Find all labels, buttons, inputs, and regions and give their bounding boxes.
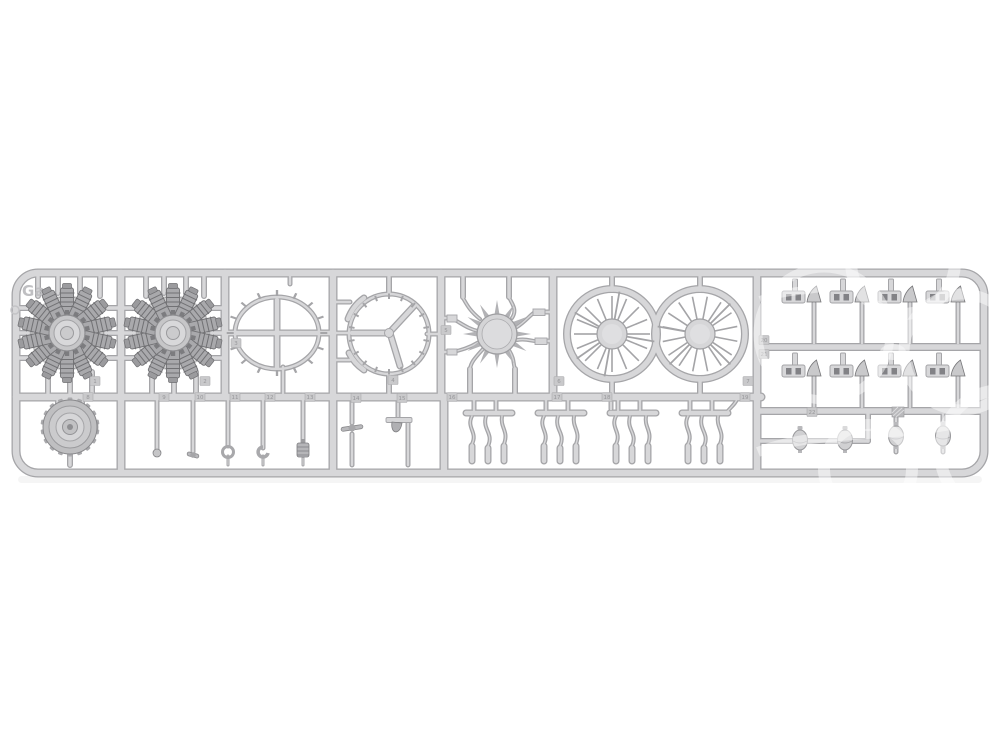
svg-text:16: 16 bbox=[449, 395, 456, 401]
part-number-tag: 6 bbox=[554, 377, 564, 386]
part-number-tag: 13 bbox=[305, 393, 315, 402]
svg-text:5: 5 bbox=[444, 328, 448, 334]
svg-text:17: 17 bbox=[554, 395, 561, 401]
svg-text:12: 12 bbox=[267, 395, 274, 401]
part-number-tag: 1 bbox=[90, 377, 100, 386]
svg-text:18: 18 bbox=[604, 395, 611, 401]
svg-text:6: 6 bbox=[557, 379, 561, 385]
part-number-tag: 17 bbox=[552, 393, 562, 402]
svg-text:4: 4 bbox=[391, 378, 395, 384]
svg-text:7: 7 bbox=[746, 379, 750, 385]
svg-text:14: 14 bbox=[353, 396, 360, 402]
part-number-tag: 14 bbox=[351, 394, 361, 403]
svg-text:8: 8 bbox=[86, 395, 90, 401]
svg-text:13: 13 bbox=[307, 395, 314, 401]
hatched-mould-tag bbox=[892, 407, 904, 417]
part-number-tag: 2 bbox=[200, 377, 210, 386]
part-number-tag: 8 bbox=[83, 393, 93, 402]
part-number-tag: 5 bbox=[441, 326, 451, 335]
part-number-tag: 22 bbox=[807, 408, 817, 417]
tube-end-block bbox=[535, 338, 547, 345]
svg-text:19: 19 bbox=[742, 395, 749, 401]
svg-text:9: 9 bbox=[162, 395, 166, 401]
part-number-tag: 12 bbox=[265, 393, 275, 402]
part-number-tag: 11 bbox=[230, 393, 240, 402]
svg-text:2: 2 bbox=[203, 379, 207, 385]
small-ball-part bbox=[153, 449, 161, 457]
part-number-tag: 18 bbox=[602, 393, 612, 402]
svg-text:11: 11 bbox=[232, 395, 239, 401]
part-number-tag: 10 bbox=[195, 393, 205, 402]
svg-text:3: 3 bbox=[234, 341, 238, 347]
tube-end-block bbox=[533, 309, 545, 316]
part-number-tag: 3 bbox=[231, 339, 241, 348]
part-number-tag: 7 bbox=[743, 377, 753, 386]
tube-end-block bbox=[447, 315, 457, 322]
y-junction bbox=[385, 329, 394, 338]
part-number-tag: 15 bbox=[397, 394, 407, 403]
part-number-tag: 19 bbox=[740, 393, 750, 402]
svg-text:15: 15 bbox=[399, 396, 406, 402]
svg-text:1: 1 bbox=[93, 379, 97, 385]
svg-text:10: 10 bbox=[197, 395, 204, 401]
tube-end-block bbox=[447, 349, 457, 355]
svg-text:22: 22 bbox=[809, 410, 816, 416]
photo-canvas: Ga bbox=[0, 0, 1000, 750]
part-number-tag: 16 bbox=[447, 393, 457, 402]
sprue-photo: Ga bbox=[0, 0, 1000, 750]
part-number-tag: 4 bbox=[388, 376, 398, 385]
part-number-tag: 9 bbox=[159, 393, 169, 402]
